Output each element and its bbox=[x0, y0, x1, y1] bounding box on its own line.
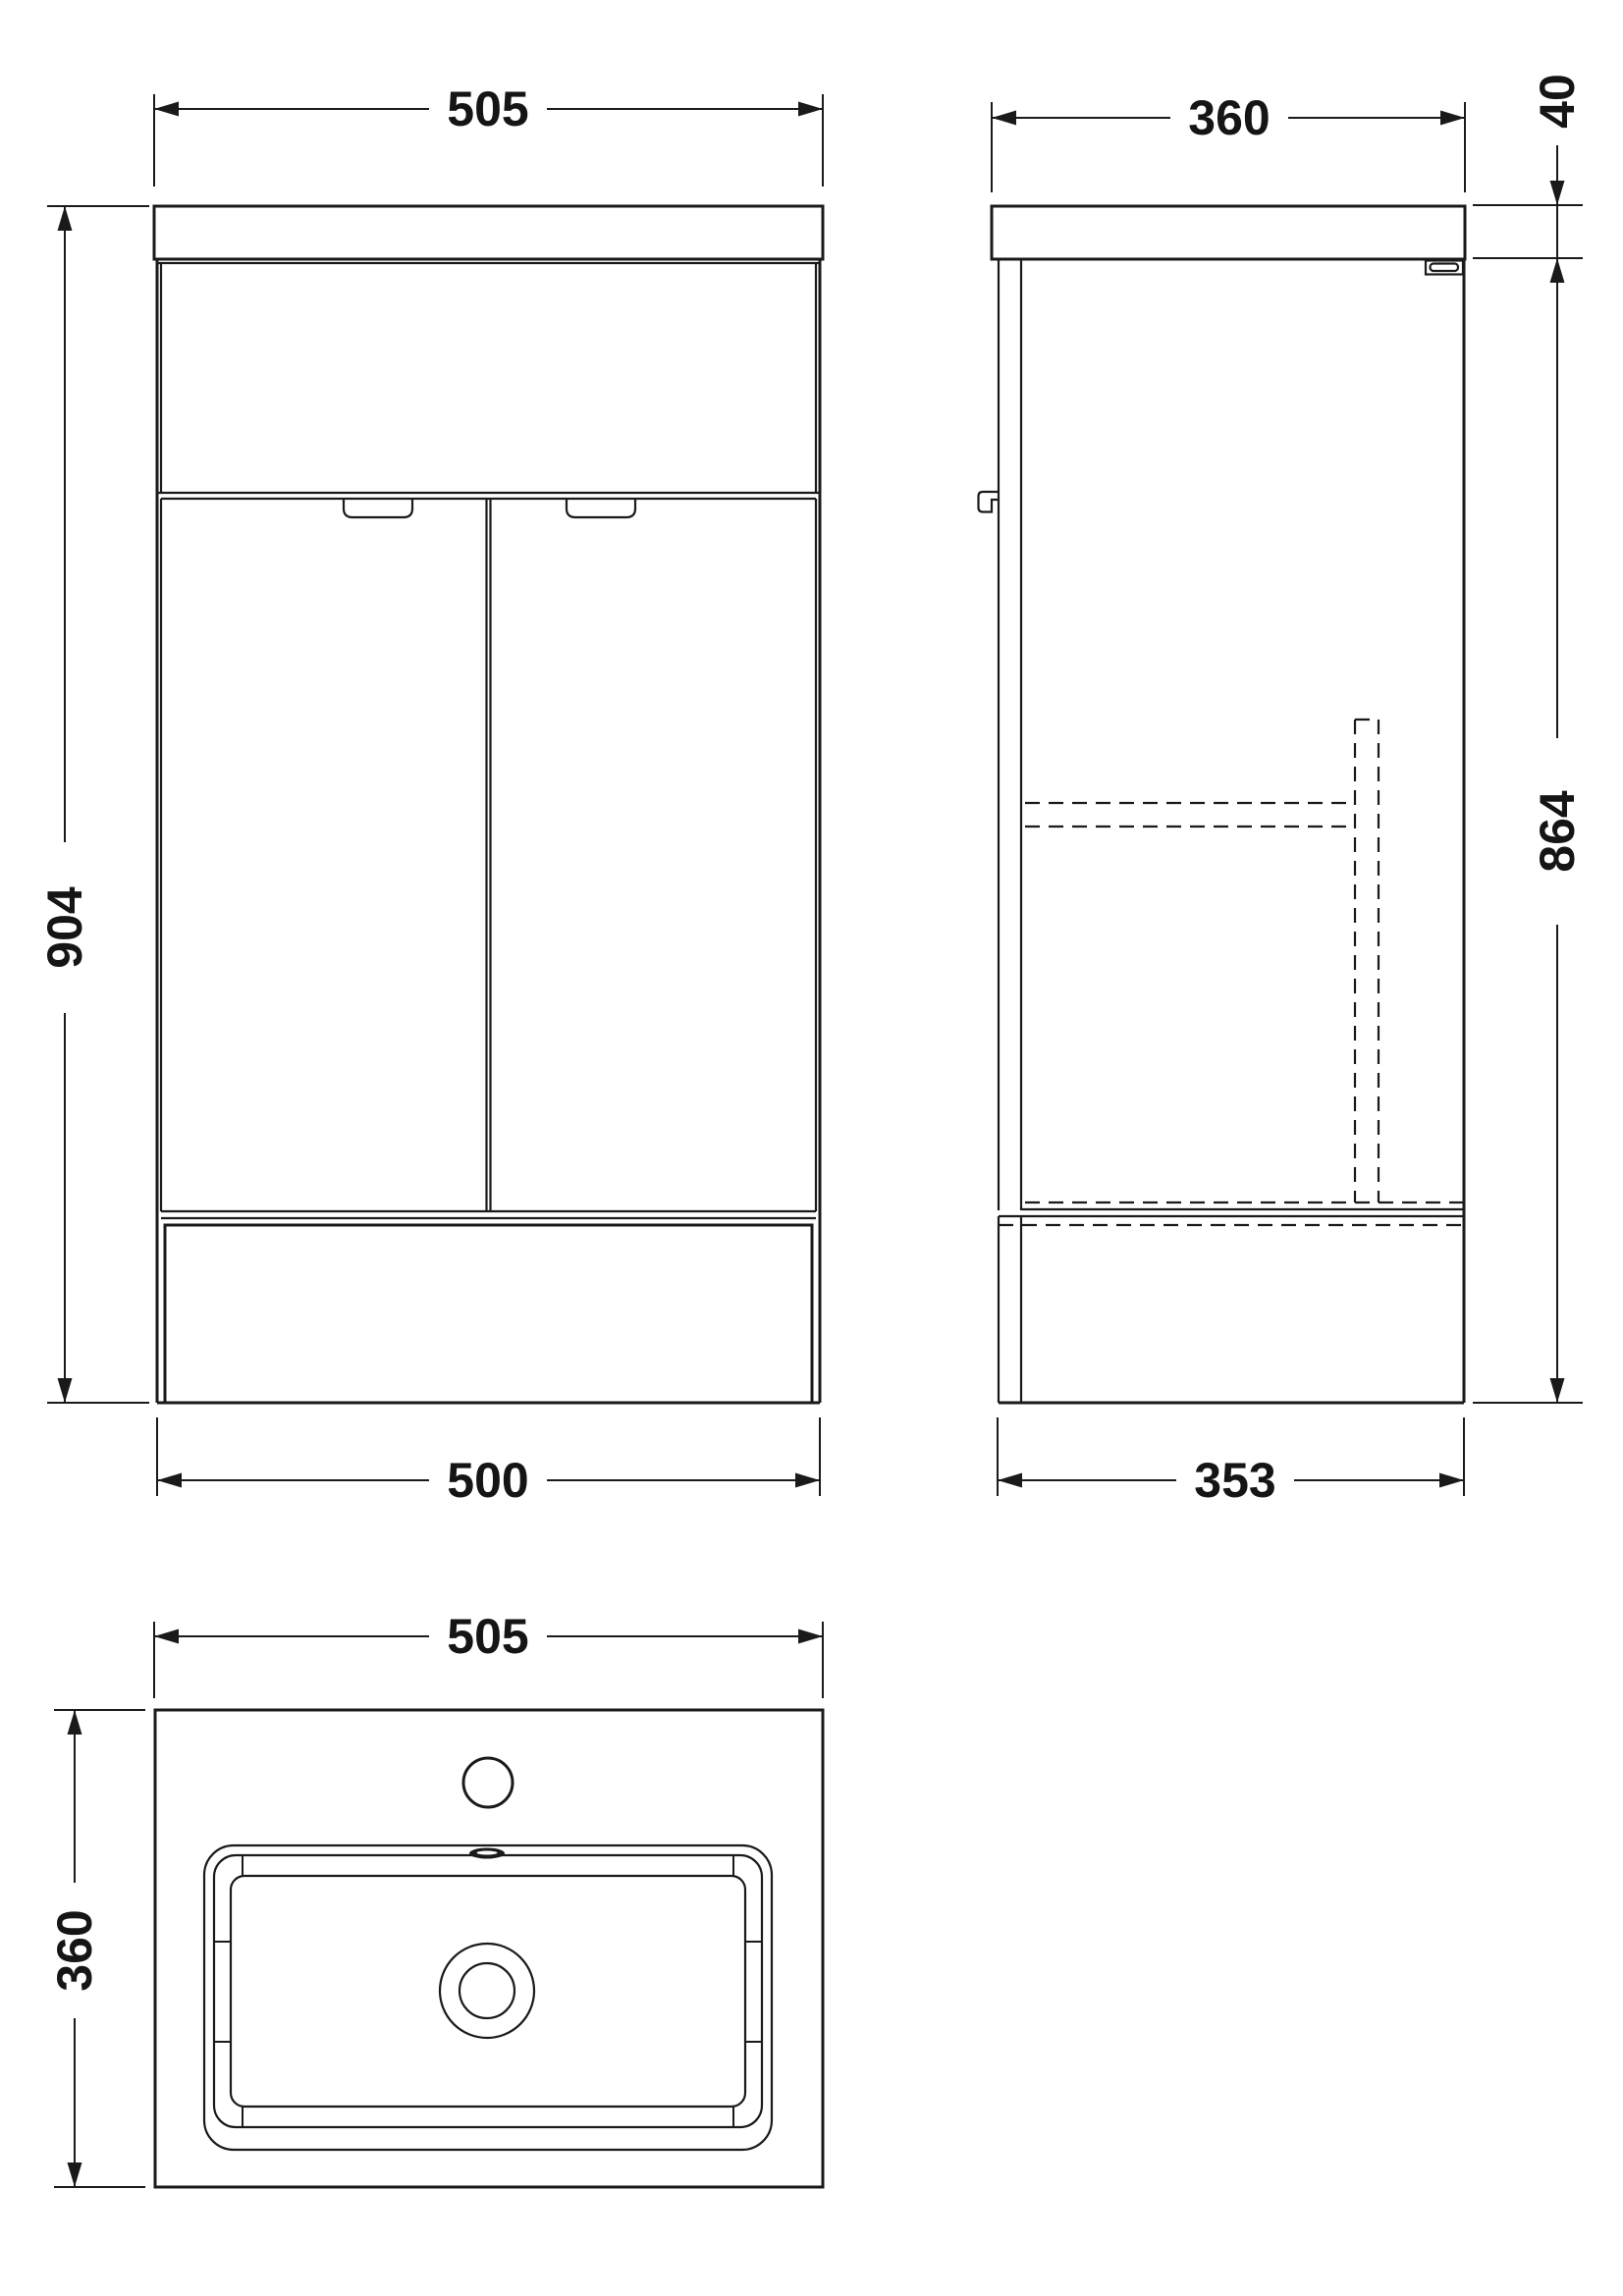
front-worktop bbox=[154, 206, 823, 259]
front-dim-height-label: 904 bbox=[37, 886, 92, 969]
front-plinth bbox=[165, 1225, 812, 1403]
front-elevation-view: 505 904 500 bbox=[37, 81, 823, 1508]
plan-waste-inner bbox=[460, 1963, 514, 2018]
side-elevation-view: 360 40 864 353 bbox=[979, 74, 1586, 1508]
plan-dim-depth-label: 360 bbox=[47, 1909, 102, 1991]
plan-bowl-rim bbox=[214, 1855, 762, 2127]
front-door-divider bbox=[487, 499, 491, 1211]
front-left-door-handle bbox=[344, 499, 412, 517]
plan-dim-width-label: 505 bbox=[447, 1609, 528, 1664]
front-dim-width-top-label: 505 bbox=[447, 81, 528, 136]
side-dim-worktop-thickness-label: 40 bbox=[1530, 74, 1585, 129]
side-door-profile bbox=[999, 259, 1021, 1210]
front-doors-bottom bbox=[161, 1211, 816, 1218]
side-dim-height-label: 864 bbox=[1530, 790, 1585, 873]
front-dim-width-top: 505 bbox=[154, 81, 823, 187]
front-panel-edges bbox=[161, 263, 816, 1211]
side-worktop bbox=[992, 206, 1465, 259]
plan-rim-segment-marks bbox=[214, 1855, 762, 2127]
side-handle-profile bbox=[979, 492, 1000, 512]
side-dim-worktop-thickness: 40 bbox=[1473, 74, 1585, 258]
plan-overflow-slot-inner bbox=[477, 1851, 498, 1855]
plan-basin-deck bbox=[155, 1710, 823, 2187]
front-cabinet-sides bbox=[157, 259, 820, 1403]
plan-bowl-inner bbox=[231, 1876, 745, 2107]
side-dim-depth-bottom-label: 353 bbox=[1194, 1453, 1275, 1508]
vanity-technical-drawing: 505 904 500 bbox=[0, 0, 1623, 2296]
front-right-door-handle bbox=[567, 499, 635, 517]
side-dim-depth-top: 360 bbox=[992, 90, 1465, 192]
plan-tap-hole bbox=[463, 1758, 513, 1807]
side-hidden-waste-pipe bbox=[1355, 720, 1379, 1202]
side-dim-height: 864 bbox=[1473, 258, 1585, 1403]
plan-waste-outer bbox=[440, 1944, 534, 2038]
drawing-sheet: 505 904 500 bbox=[0, 0, 1623, 2296]
front-dim-height: 904 bbox=[37, 206, 149, 1403]
front-dim-width-bottom: 500 bbox=[157, 1417, 820, 1508]
side-bracket-slot-inner bbox=[1431, 264, 1459, 272]
side-dim-depth-top-label: 360 bbox=[1188, 90, 1270, 145]
plan-bowl-outer bbox=[204, 1845, 772, 2150]
side-hidden-shelf bbox=[1025, 803, 1355, 827]
front-dim-width-bottom-label: 500 bbox=[447, 1453, 528, 1508]
plan-dim-depth: 360 bbox=[47, 1710, 145, 2187]
side-dim-depth-bottom: 353 bbox=[998, 1417, 1464, 1508]
side-bottom-panel bbox=[999, 1209, 1464, 1216]
side-plinth-front bbox=[999, 1216, 1021, 1403]
side-hidden-bottom-edges bbox=[999, 1202, 1464, 1225]
plan-dim-width: 505 bbox=[154, 1609, 823, 1698]
plan-view: 505 360 bbox=[47, 1609, 823, 2187]
